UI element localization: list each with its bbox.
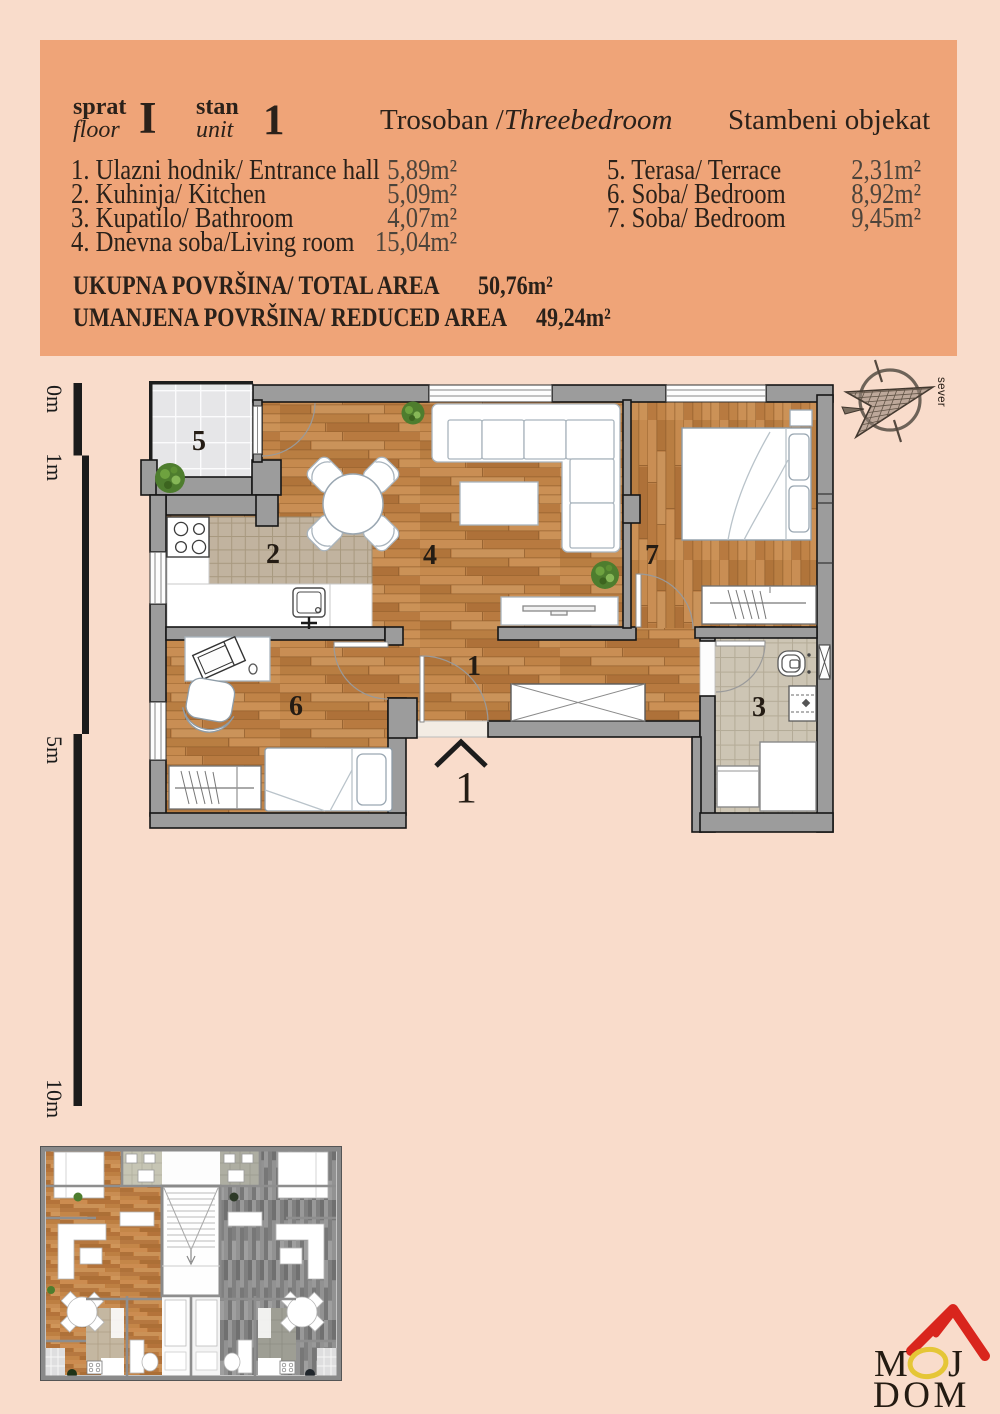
svg-text:5: 5	[192, 426, 206, 457]
svg-text:0m: 0m	[42, 385, 67, 413]
svg-text:5m: 5m	[42, 736, 67, 764]
svg-text:4: 4	[423, 540, 437, 571]
svg-text:sever: sever	[935, 377, 947, 407]
svg-text:DOM: DOM	[873, 1375, 970, 1414]
svg-text:10m: 10m	[42, 1079, 67, 1118]
svg-text:7: 7	[645, 540, 659, 571]
svg-text:1: 1	[467, 651, 481, 682]
svg-text:3: 3	[752, 692, 766, 723]
svg-text:6: 6	[289, 691, 303, 722]
svg-text:1m: 1m	[42, 453, 67, 481]
svg-text:2: 2	[266, 539, 280, 570]
svg-text:1: 1	[455, 763, 477, 812]
